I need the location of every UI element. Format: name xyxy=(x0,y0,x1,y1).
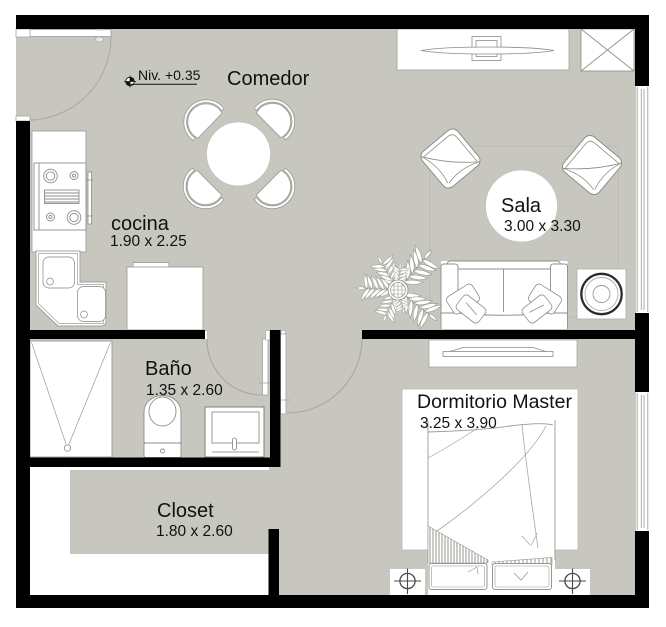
svg-text:Dormitorio Master: Dormitorio Master xyxy=(417,391,572,413)
svg-text:Closet: Closet xyxy=(157,500,214,522)
svg-text:3.25 x 3.90: 3.25 x 3.90 xyxy=(420,415,497,432)
svg-text:Baño: Baño xyxy=(145,358,192,380)
svg-text:Comedor: Comedor xyxy=(227,68,310,90)
svg-text:Niv. +0.35: Niv. +0.35 xyxy=(138,67,201,83)
svg-text:1.80 x 2.60: 1.80 x 2.60 xyxy=(156,523,233,540)
svg-text:cocina: cocina xyxy=(111,213,170,235)
svg-text:Sala: Sala xyxy=(501,195,542,217)
svg-text:1.35 x 2.60: 1.35 x 2.60 xyxy=(146,382,223,399)
svg-text:1.90 x 2.25: 1.90 x 2.25 xyxy=(110,233,187,250)
svg-text:3.00 x 3.30: 3.00 x 3.30 xyxy=(504,218,581,235)
